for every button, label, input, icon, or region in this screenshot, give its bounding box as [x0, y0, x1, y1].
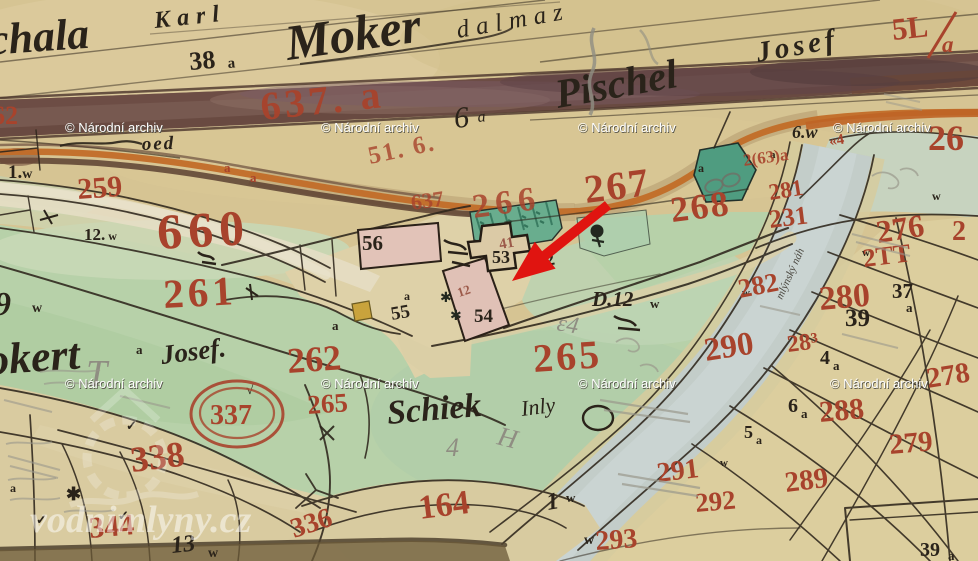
svg-text:262: 262 — [286, 337, 343, 381]
svg-text:© Národní archiv: © Národní archiv — [65, 376, 163, 391]
svg-text:56: 56 — [362, 231, 383, 255]
svg-text:293: 293 — [594, 523, 638, 557]
svg-text:288: 288 — [818, 392, 866, 429]
svg-text:a: a — [136, 342, 143, 357]
svg-text:261: 261 — [162, 267, 238, 317]
svg-text:2: 2 — [952, 216, 966, 247]
svg-text:278: 278 — [924, 357, 972, 395]
svg-text:55: 55 — [389, 301, 411, 325]
svg-text:164: 164 — [416, 484, 471, 527]
svg-text:279: 279 — [888, 425, 934, 461]
svg-text:© Národní archiv: © Národní archiv — [833, 120, 931, 135]
svg-text:39: 39 — [920, 539, 940, 561]
svg-text:a: a — [224, 160, 231, 175]
svg-text:6: 6 — [788, 395, 798, 417]
svg-text:267: 267 — [582, 159, 653, 212]
svg-text:259: 259 — [76, 170, 123, 206]
svg-text:✱: ✱ — [440, 291, 452, 306]
svg-text:268: 268 — [668, 183, 732, 230]
svg-text:a: a — [332, 318, 339, 333]
svg-text:5L: 5L — [890, 8, 930, 47]
svg-text:© Národní archiv: © Národní archiv — [578, 376, 676, 391]
svg-text:a: a — [833, 358, 840, 373]
svg-text:a: a — [756, 433, 762, 447]
svg-text:6.w: 6.w — [792, 122, 819, 142]
svg-text:w: w — [932, 189, 941, 203]
svg-text:w: w — [208, 546, 219, 561]
svg-text:a: a — [250, 170, 257, 185]
svg-text:D.12: D.12 — [591, 287, 634, 311]
svg-text:w: w — [650, 296, 660, 311]
svg-text:292: 292 — [694, 485, 737, 518]
svg-text:a: a — [801, 406, 808, 421]
svg-text:265: 265 — [531, 331, 603, 381]
svg-text:338: 338 — [128, 434, 186, 480]
svg-text:265: 265 — [306, 387, 348, 420]
svg-text:41: 41 — [498, 235, 516, 253]
svg-text:© Národní archiv: © Národní archiv — [65, 120, 163, 135]
svg-text:w: w — [720, 457, 728, 469]
svg-text:9: 9 — [0, 286, 11, 323]
svg-text:38: 38 — [188, 45, 216, 76]
svg-text:26: 26 — [928, 118, 964, 158]
svg-text:ε4: ε4 — [555, 310, 581, 339]
svg-text:© Národní archiv: © Národní archiv — [830, 376, 928, 391]
svg-text:© Národní archiv: © Národní archiv — [321, 120, 419, 135]
svg-text:290: 290 — [702, 326, 757, 369]
svg-text:w: w — [566, 490, 576, 505]
svg-text:660: 660 — [156, 199, 252, 260]
svg-text:w: w — [32, 301, 43, 316]
svg-text:a: a — [942, 32, 954, 57]
svg-text:✱: ✱ — [450, 309, 462, 324]
svg-text:a: a — [906, 300, 913, 315]
svg-text:4: 4 — [446, 433, 459, 462]
svg-text:231: 231 — [767, 200, 809, 234]
svg-text:w: w — [584, 533, 595, 548]
svg-text:62: 62 — [0, 101, 18, 130]
svg-text:Inly: Inly — [519, 392, 557, 421]
svg-text:oed: oed — [141, 133, 175, 155]
svg-text:chala: chala — [0, 9, 91, 65]
svg-text:637: 637 — [409, 186, 445, 215]
svg-text:281: 281 — [767, 175, 805, 205]
svg-text:a: a — [404, 289, 410, 303]
svg-text:280: 280 — [817, 277, 871, 318]
svg-text:a: a — [698, 161, 704, 175]
svg-text:© Národní archiv: © Národní archiv — [321, 376, 419, 391]
svg-text:28³: 28³ — [786, 328, 820, 358]
svg-text:289: 289 — [783, 462, 830, 499]
svg-text:vodnimlyny.cz: vodnimlyny.cz — [30, 499, 251, 541]
svg-text:a: a — [948, 548, 955, 561]
svg-text:a: a — [10, 481, 16, 495]
svg-text:337: 337 — [210, 400, 252, 431]
svg-text:54: 54 — [474, 306, 494, 327]
svg-text:4: 4 — [820, 347, 830, 369]
svg-text:© Národní archiv: © Národní archiv — [578, 120, 676, 135]
svg-text:5: 5 — [744, 422, 753, 442]
